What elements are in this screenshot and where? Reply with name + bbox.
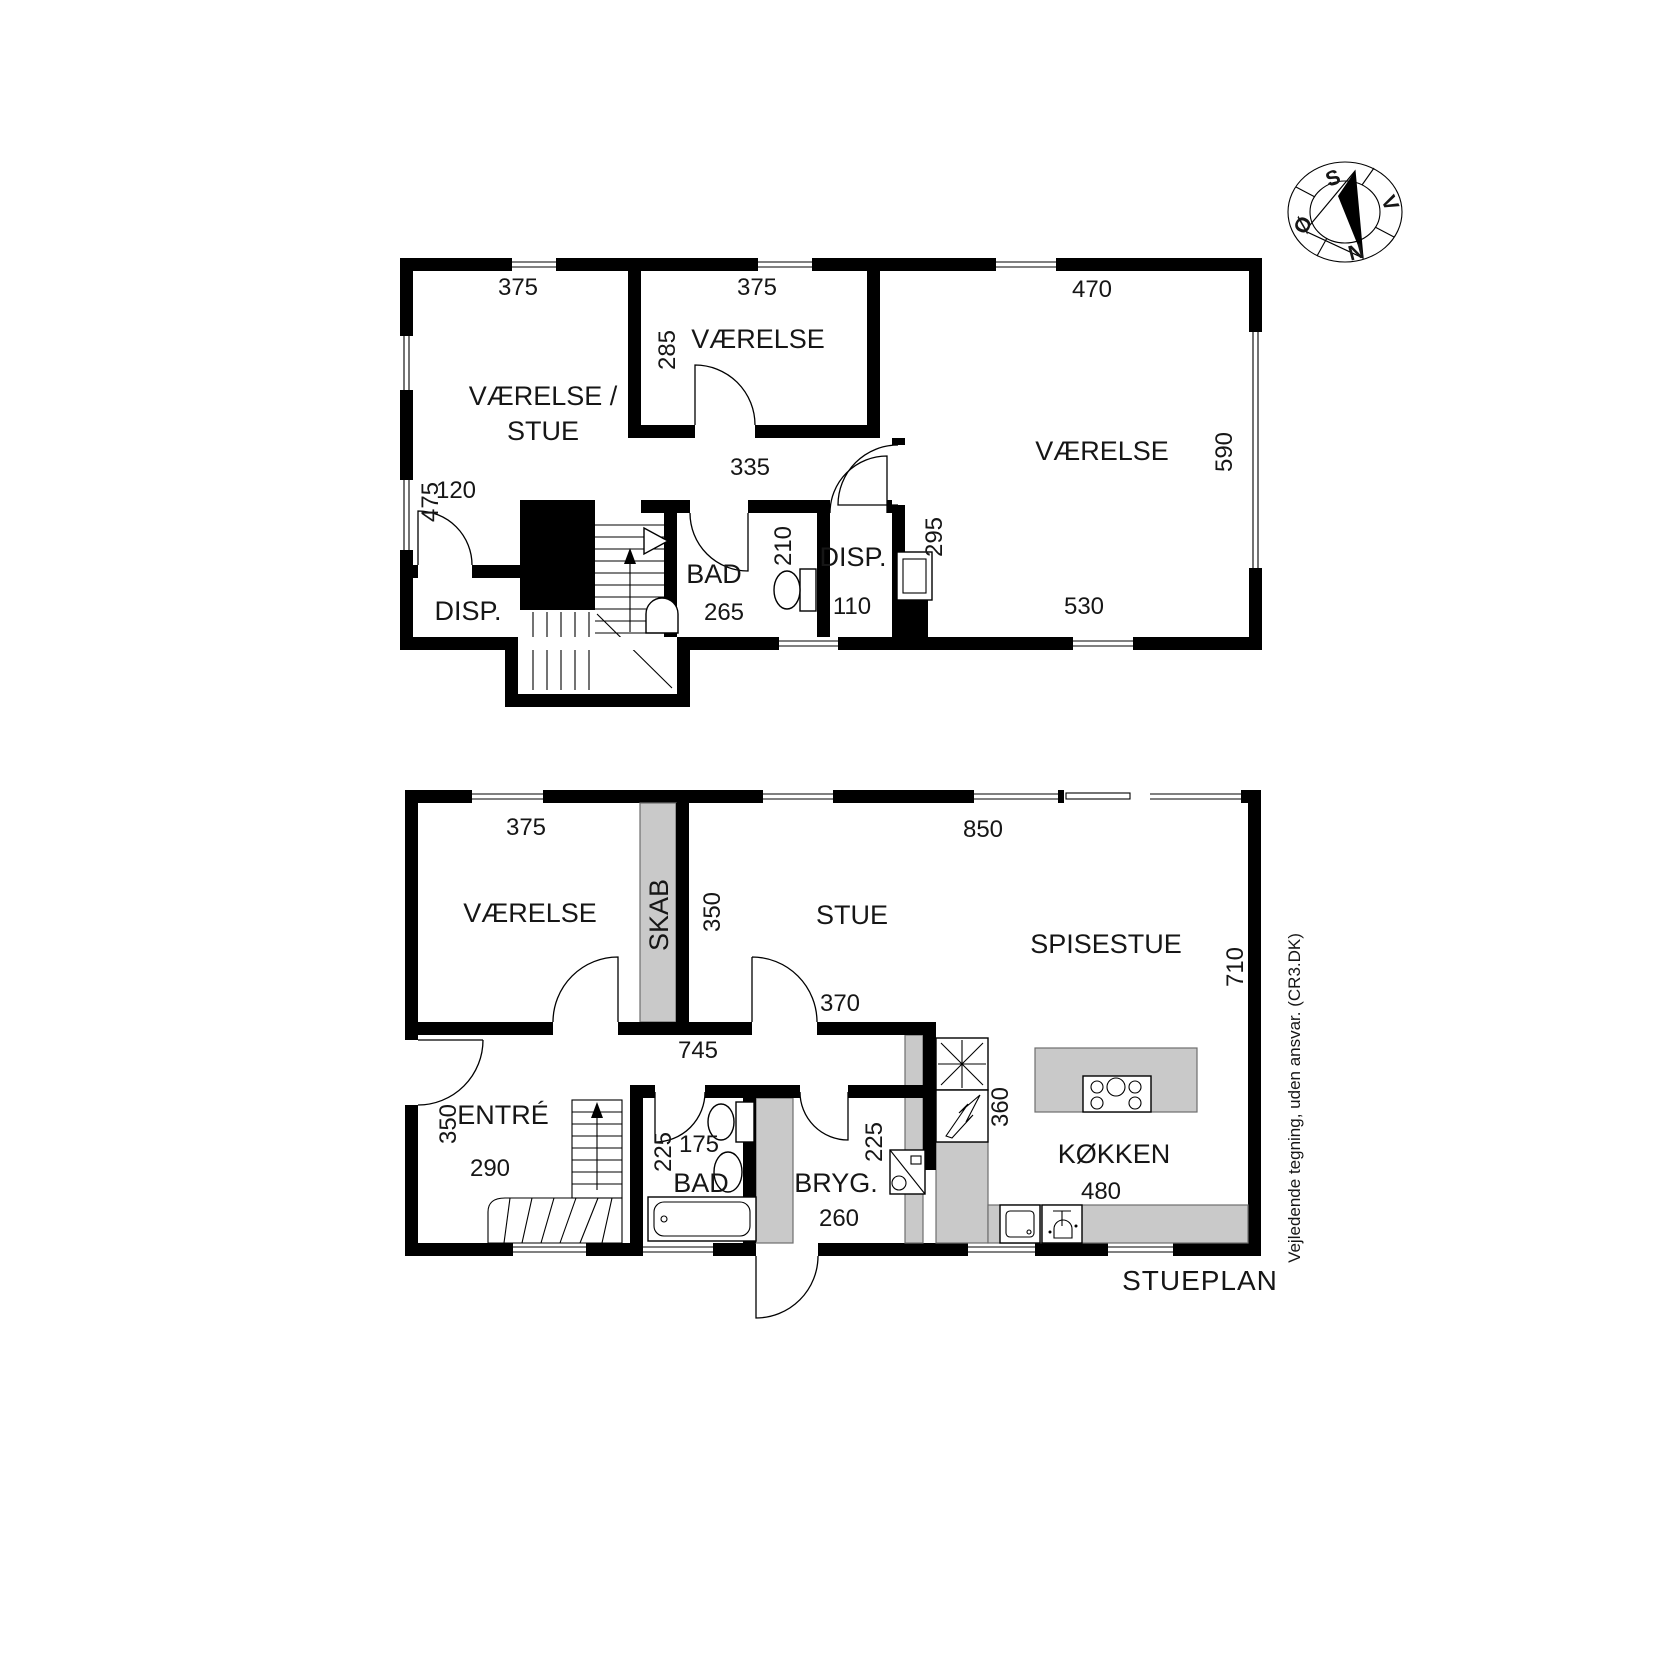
lower-dim-225-bad: 225 <box>650 1132 677 1172</box>
toilet-bowl <box>774 571 800 609</box>
lower-dim-350-skab: 350 <box>699 892 726 932</box>
compass-south-label: S <box>1323 165 1344 191</box>
upper-dim-530: 530 <box>1064 593 1104 620</box>
patio-door-open <box>1058 790 1150 803</box>
upper-room-vaerelse-right: VÆRELSE <box>1035 436 1169 466</box>
upper-interior-walls <box>413 271 928 637</box>
floorplan-page: S V N Ø <box>0 0 1654 1654</box>
upper-dim-470: 470 <box>1072 276 1112 303</box>
utility-box-electrical <box>936 1090 988 1142</box>
upper-room-disp-right: DISP. <box>819 542 886 572</box>
upper-room-bad: BAD <box>686 559 742 589</box>
floorplan-drawing: S V N Ø <box>0 0 1654 1654</box>
upper-dim-210: 210 <box>770 526 797 566</box>
lower-dim-370: 370 <box>820 990 860 1017</box>
upper-room-disp-left: DISP. <box>434 596 501 626</box>
utility-box-vent <box>936 1038 988 1090</box>
kitchen-counter-vertical <box>936 1142 988 1243</box>
bryg-counter-right <box>905 1035 923 1243</box>
kitchen-sink <box>1000 1205 1040 1243</box>
compass-rose: S V N Ø <box>1288 162 1403 266</box>
lower-room-bad: BAD <box>673 1168 729 1198</box>
stair-direction-arrow <box>591 1102 603 1190</box>
upper-dim-375-left: 375 <box>498 274 538 301</box>
lower-dim-480: 480 <box>1081 1178 1121 1205</box>
island-hob <box>1083 1076 1151 1112</box>
upper-room-vaerelse-stue-line1: VÆRELSE / <box>469 381 618 411</box>
lower-dim-225-bryg: 225 <box>861 1122 888 1162</box>
lower-dim-710: 710 <box>1222 947 1249 987</box>
bryg-counter-left <box>756 1098 793 1243</box>
kitchen-faucet <box>1042 1205 1082 1243</box>
upper-dim-110: 110 <box>833 593 871 620</box>
upper-floor-plan: VÆRELSE / STUE VÆRELSE VÆRELSE BAD DISP.… <box>400 258 1262 707</box>
lower-dim-375: 375 <box>506 814 546 841</box>
lower-dim-850: 850 <box>963 816 1003 843</box>
ground-floor-plan: VÆRELSE SKAB STUE SPISESTUE ENTRÉ BAD BR… <box>405 790 1261 1318</box>
lower-dim-360: 360 <box>987 1087 1014 1127</box>
upper-dim-265: 265 <box>704 599 744 626</box>
plan-title: STUEPLAN <box>1122 1265 1278 1296</box>
upper-dim-375-mid: 375 <box>737 274 777 301</box>
lower-room-stue: STUE <box>816 900 888 930</box>
upper-dim-295: 295 <box>921 517 948 557</box>
upper-room-vaerelse-mid: VÆRELSE <box>691 324 825 354</box>
lower-room-bryg: BRYG. <box>794 1168 878 1198</box>
upper-room-vaerelse-stue-line2: STUE <box>507 416 579 446</box>
stair-direction-arrow <box>624 548 636 632</box>
bathtub <box>648 1197 756 1241</box>
upper-dim-475: 475 <box>417 482 444 522</box>
toilet-cistern <box>800 569 816 611</box>
upper-dim-335: 335 <box>730 454 770 481</box>
lower-room-kokken: KØKKEN <box>1058 1139 1171 1169</box>
lower-room-spisestue: SPISESTUE <box>1030 929 1182 959</box>
lower-dim-350-entre: 350 <box>435 1104 462 1144</box>
lower-dim-745: 745 <box>678 1037 718 1064</box>
lower-dim-260: 260 <box>819 1205 859 1232</box>
lower-room-entre: ENTRÉ <box>457 1100 549 1130</box>
toilet-cistern <box>736 1102 754 1142</box>
disclaimer-note: Vejledende tegning, uden ansvar. (CR3.DK… <box>1285 933 1304 1263</box>
lower-dim-175: 175 <box>679 1131 719 1158</box>
washbasin <box>646 598 678 633</box>
lower-dim-290: 290 <box>470 1155 510 1182</box>
upper-dim-590: 590 <box>1211 432 1238 472</box>
upper-dim-285: 285 <box>654 330 681 370</box>
lower-room-skab: SKAB <box>644 879 674 951</box>
lower-room-vaerelse: VÆRELSE <box>463 898 597 928</box>
washing-machine <box>890 1150 925 1194</box>
